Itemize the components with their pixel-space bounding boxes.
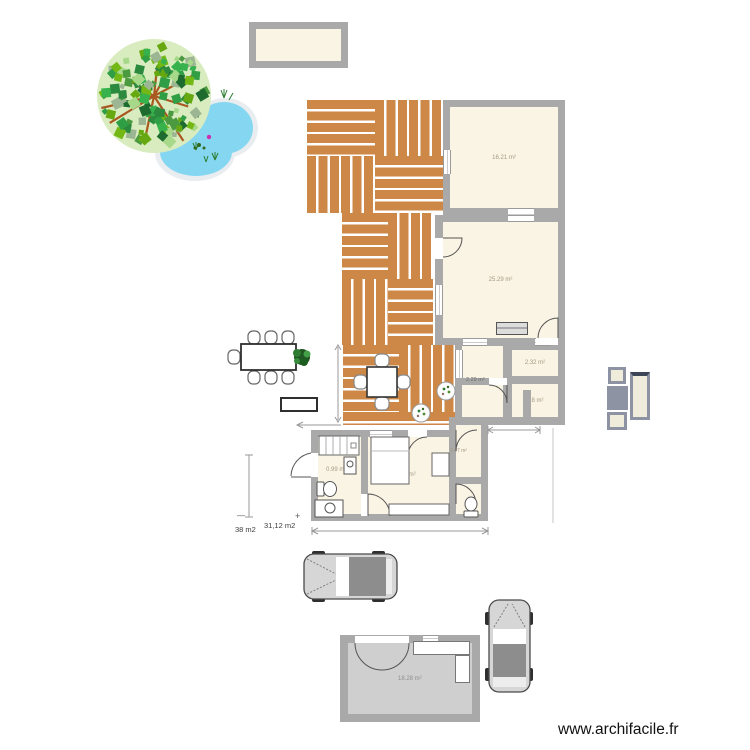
deck-tile (375, 156, 443, 213)
dim-house-bottom (312, 527, 488, 535)
deck-tile (388, 279, 433, 345)
deck-tile (343, 345, 399, 412)
swatch-tall (630, 372, 650, 420)
deck-tile (388, 213, 433, 279)
watermark: www.archifacile.fr (558, 721, 679, 739)
bath-small-floor: 4.8 m² (512, 384, 558, 417)
window (370, 430, 392, 438)
dining-table (241, 344, 296, 370)
deck-tile (399, 345, 455, 412)
pond-scribble (194, 143, 206, 150)
total-area-right: 31,12 m2 (264, 521, 295, 530)
dim-deck-vertical (335, 345, 341, 422)
hall-lower-floor (462, 385, 503, 417)
tick-plus: + (295, 511, 300, 521)
bedroom-area-label: 13.27 m² (392, 472, 416, 478)
closet-area-label: 0.97 m² (450, 448, 467, 454)
hall-area-label: 2.29 m² (466, 377, 485, 383)
deck-tile (343, 412, 455, 425)
deck-tile (307, 100, 375, 156)
deck-tile (307, 156, 375, 213)
door-gap (489, 378, 507, 385)
door-entry-ext (291, 453, 311, 477)
flower (207, 135, 211, 139)
garage-counter (455, 655, 470, 683)
bench-rectangle (280, 397, 318, 412)
bath-small-wall-stub (523, 390, 531, 417)
window (455, 350, 463, 378)
room1-area-label: 16.21 m² (492, 155, 516, 161)
door-gap (536, 338, 558, 345)
garage-area-label: 18.28 m² (398, 676, 422, 682)
garage-door-gap (355, 636, 409, 643)
dim-deck-left (297, 422, 341, 428)
tick-minus: — (237, 511, 245, 520)
pond-plants (193, 89, 233, 162)
car-vertical (485, 600, 533, 692)
plant (293, 349, 311, 366)
wc-house-floor (456, 484, 481, 514)
radiator (496, 322, 528, 335)
swatch-solid (607, 386, 628, 410)
door-gap (311, 453, 318, 477)
tree-canopy (99, 42, 211, 149)
total-area-left: 38 m2 (235, 525, 256, 534)
door-gap (361, 494, 368, 516)
door-gap (435, 238, 443, 259)
deck-tile (342, 213, 388, 279)
window (443, 150, 451, 174)
hall-upper-floor (462, 346, 503, 378)
garage-counter (413, 641, 470, 655)
room2-floor: 25.29 m² (443, 222, 558, 338)
room2-area-label: 25.29 m² (489, 277, 513, 283)
window (435, 285, 443, 315)
floor-plan-canvas: 16.21 m² 25.29 m² 2.32 m² 4.8 m² 2.29 m²… (0, 0, 750, 750)
tree (97, 39, 211, 153)
bathroom-floor (318, 437, 361, 514)
deck-tile (375, 100, 443, 156)
wc-small-area-label: 2.32 m² (525, 360, 545, 366)
wc-small-floor: 2.32 m² (512, 350, 558, 376)
bathroom-area-label: 0.99 m² (326, 467, 346, 473)
terrace-top-floor (256, 29, 341, 61)
swatch-small-top (608, 367, 626, 384)
pond (155, 98, 258, 181)
window (463, 338, 487, 346)
window (508, 208, 534, 222)
car-horizontal (304, 551, 397, 602)
door-gap (408, 430, 427, 437)
room1-floor: 16.21 m² (450, 107, 558, 208)
swatch-small-bottom (607, 412, 627, 430)
deck-tile (342, 279, 388, 345)
dim-utility (488, 426, 540, 434)
ruler-left (245, 455, 253, 517)
dining-set (228, 331, 311, 384)
